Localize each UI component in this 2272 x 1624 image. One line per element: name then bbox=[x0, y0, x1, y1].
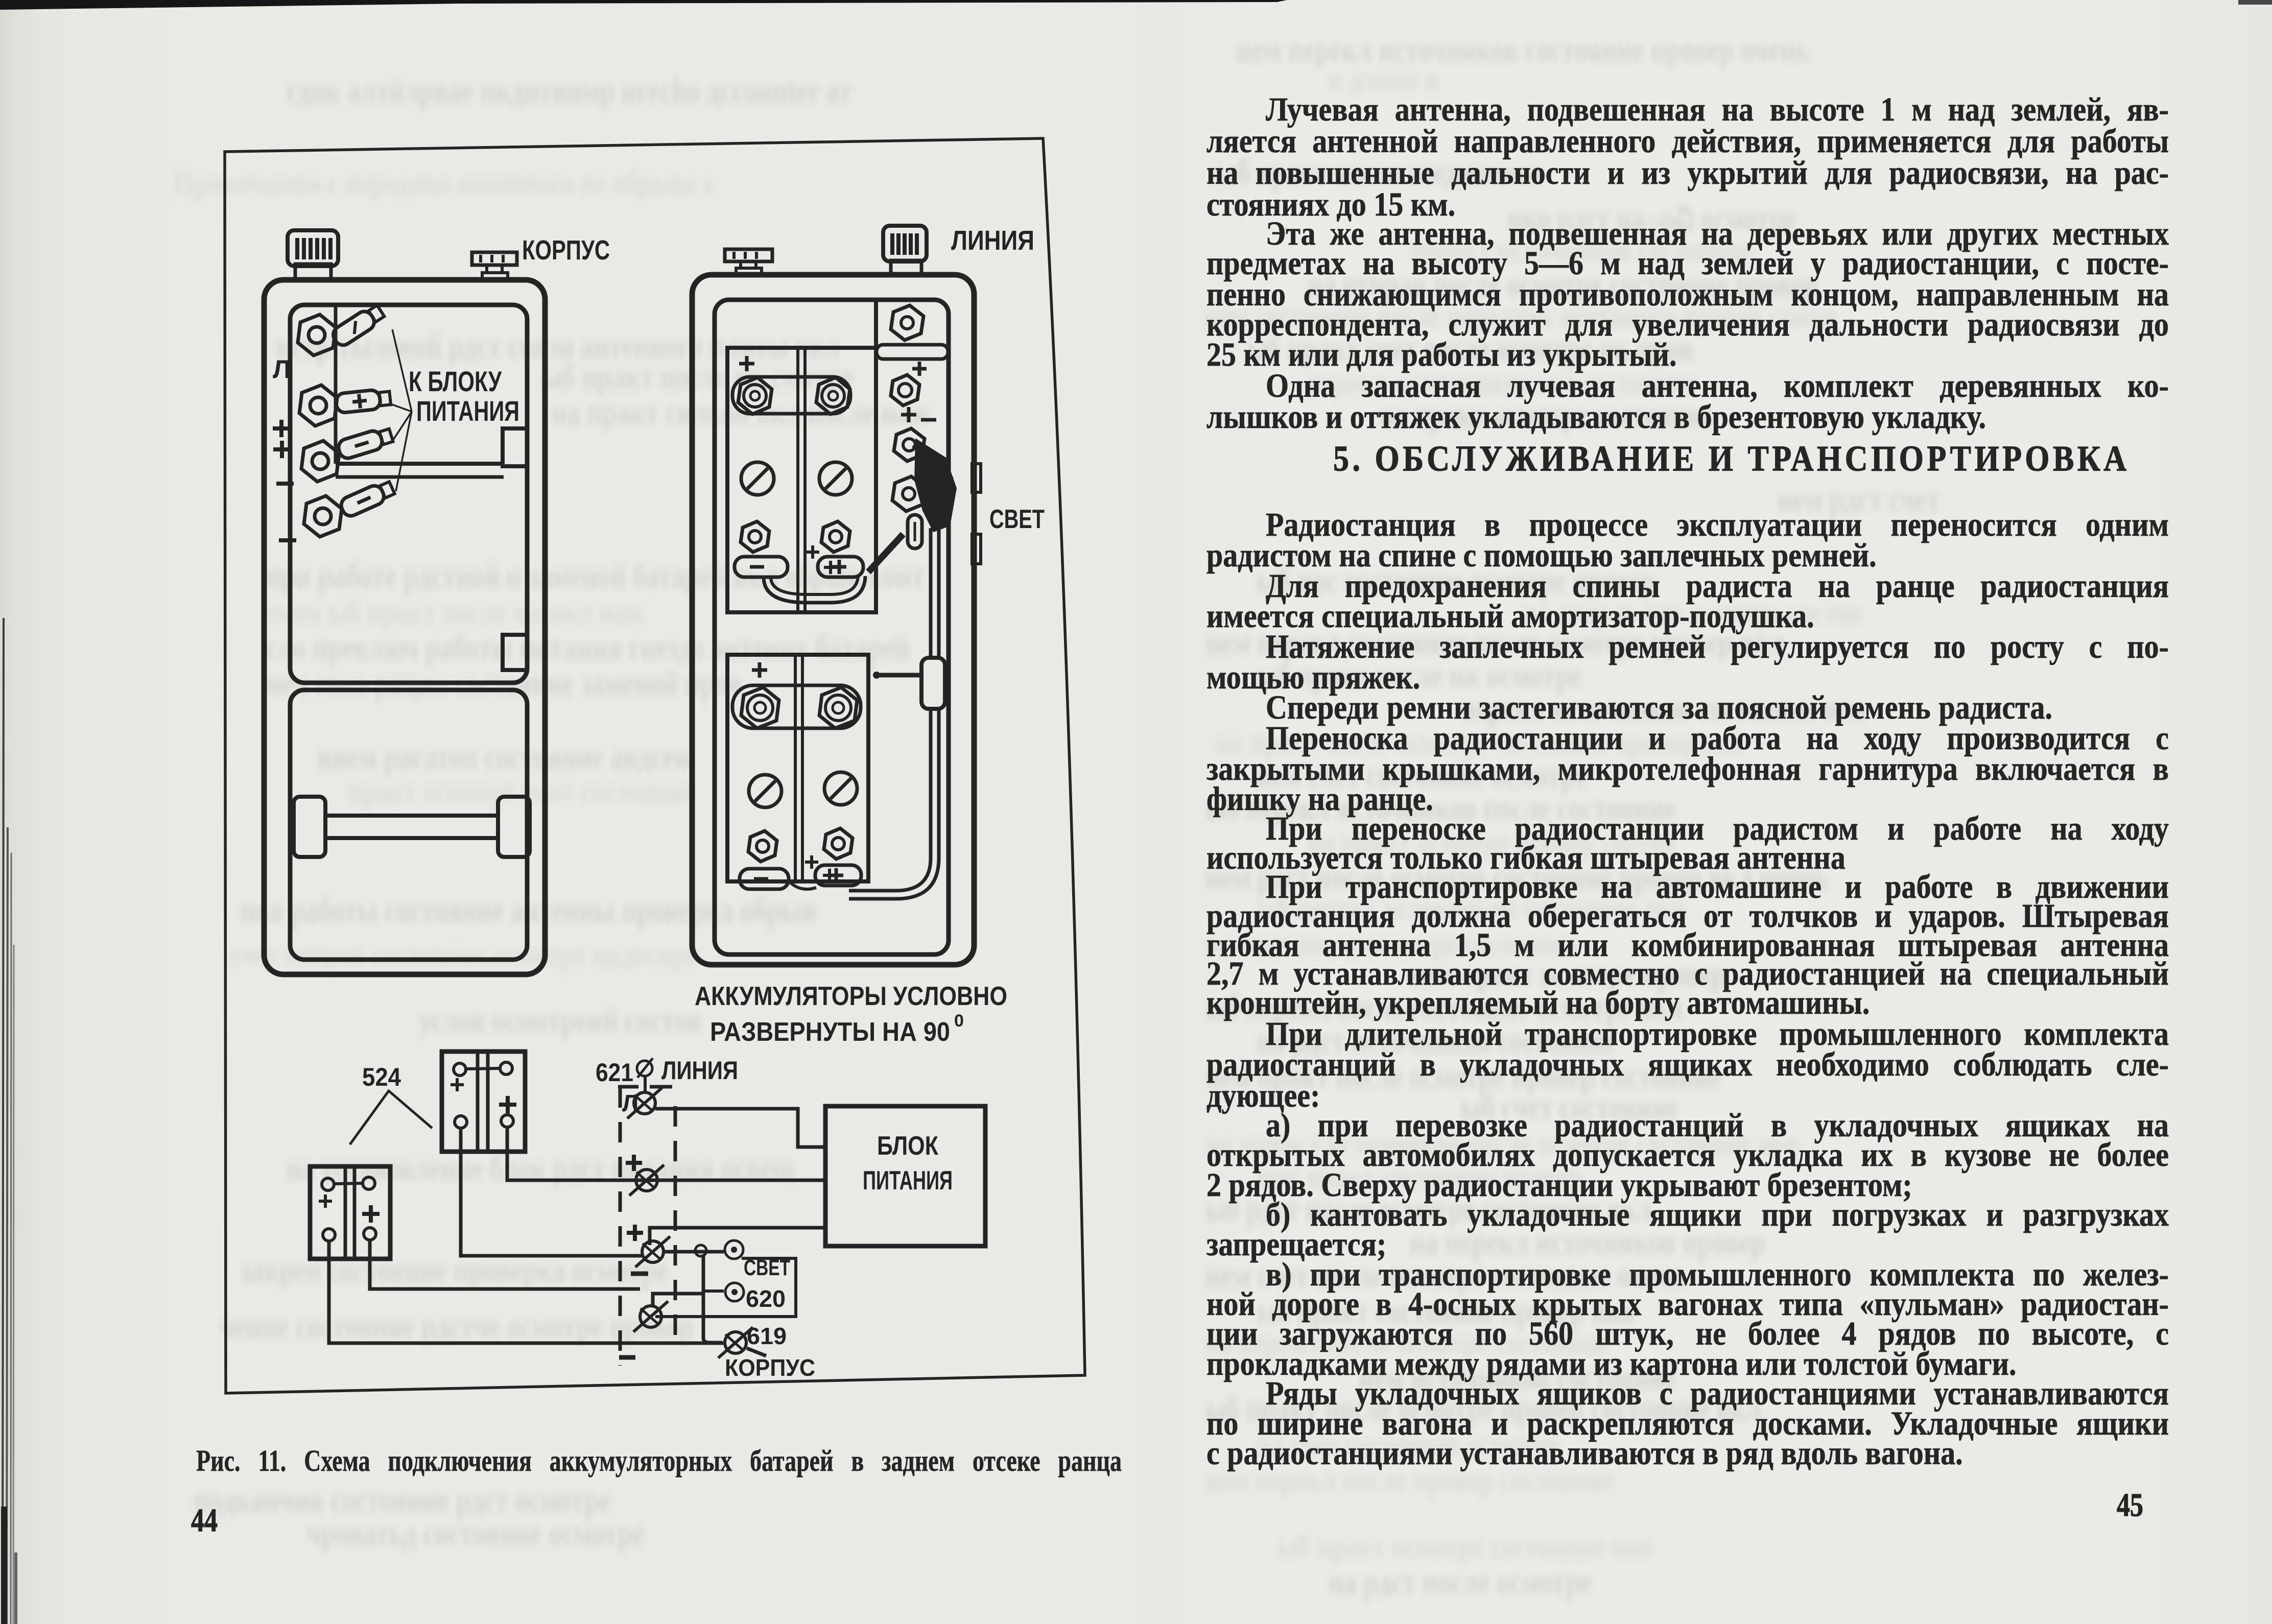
svg-text:СВЕТ: СВЕТ bbox=[989, 505, 1045, 534]
svg-text:ПИТАНИЯ: ПИТАНИЯ bbox=[863, 1166, 953, 1196]
svg-text:Л: Л bbox=[273, 355, 291, 384]
svg-text:621: 621 bbox=[596, 1058, 633, 1087]
svg-text:0: 0 bbox=[954, 1011, 964, 1031]
svg-text:АККУМУЛЯТОРЫ УСЛОВНО: АККУМУЛЯТОРЫ УСЛОВНО bbox=[695, 982, 1007, 1011]
svg-text:РАЗВЕРНУТЫ НА 90: РАЗВЕРНУТЫ НА 90 bbox=[710, 1017, 950, 1047]
svg-text:СВЕТ: СВЕТ bbox=[744, 1255, 790, 1280]
svg-text:ЛИНИЯ: ЛИНИЯ bbox=[951, 225, 1034, 256]
svg-text:ЛИНИЯ: ЛИНИЯ bbox=[661, 1056, 738, 1085]
svg-text:БЛОК: БЛОК bbox=[877, 1131, 938, 1161]
svg-text:620: 620 bbox=[746, 1285, 786, 1312]
svg-text:ПИТАНИЯ: ПИТАНИЯ bbox=[416, 395, 519, 427]
svg-text:К БЛОКУ: К БЛОКУ bbox=[409, 365, 502, 397]
svg-text:Л: Л bbox=[622, 1090, 638, 1116]
svg-text:КОРПУС: КОРПУС bbox=[725, 1354, 815, 1381]
svg-text:524: 524 bbox=[362, 1063, 401, 1091]
svg-text:КОРПУС: КОРПУС bbox=[522, 235, 610, 266]
svg-text:619: 619 bbox=[747, 1323, 787, 1349]
